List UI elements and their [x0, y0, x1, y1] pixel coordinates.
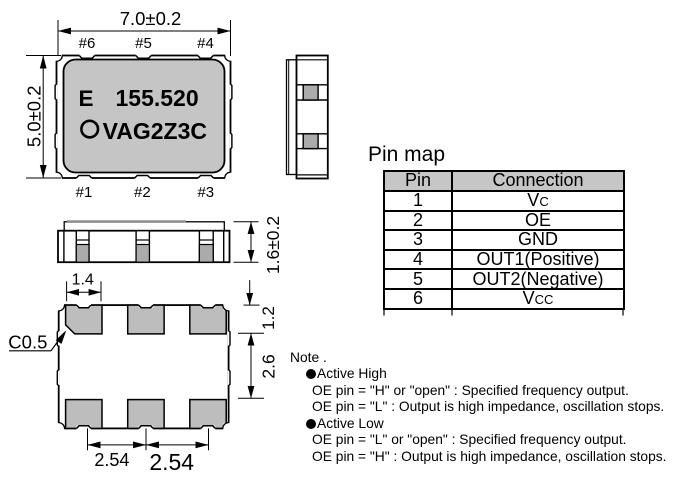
- svg-text:#5: #5: [135, 35, 152, 52]
- svg-text:7.0±0.2: 7.0±0.2: [120, 8, 182, 29]
- svg-text:#1: #1: [76, 184, 93, 201]
- svg-text:#4: #4: [197, 35, 214, 52]
- svg-text:1.2: 1.2: [259, 306, 278, 330]
- svg-text:2.54: 2.54: [94, 450, 129, 470]
- svg-text:#3: #3: [197, 184, 214, 201]
- svg-text:155.520: 155.520: [116, 85, 199, 111]
- svg-text:VAG2Z3C: VAG2Z3C: [103, 118, 207, 144]
- svg-text:5.0±0.2: 5.0±0.2: [24, 86, 45, 148]
- svg-text:C0.5: C0.5: [8, 332, 47, 353]
- svg-text:1.4: 1.4: [72, 272, 94, 289]
- svg-text:1.6±0.2: 1.6±0.2: [263, 216, 283, 274]
- svg-text:2.6: 2.6: [259, 354, 279, 378]
- svg-text:#2: #2: [134, 184, 151, 201]
- svg-text:#6: #6: [79, 35, 96, 52]
- svg-text:2.54: 2.54: [149, 449, 194, 475]
- svg-text:E: E: [79, 86, 94, 111]
